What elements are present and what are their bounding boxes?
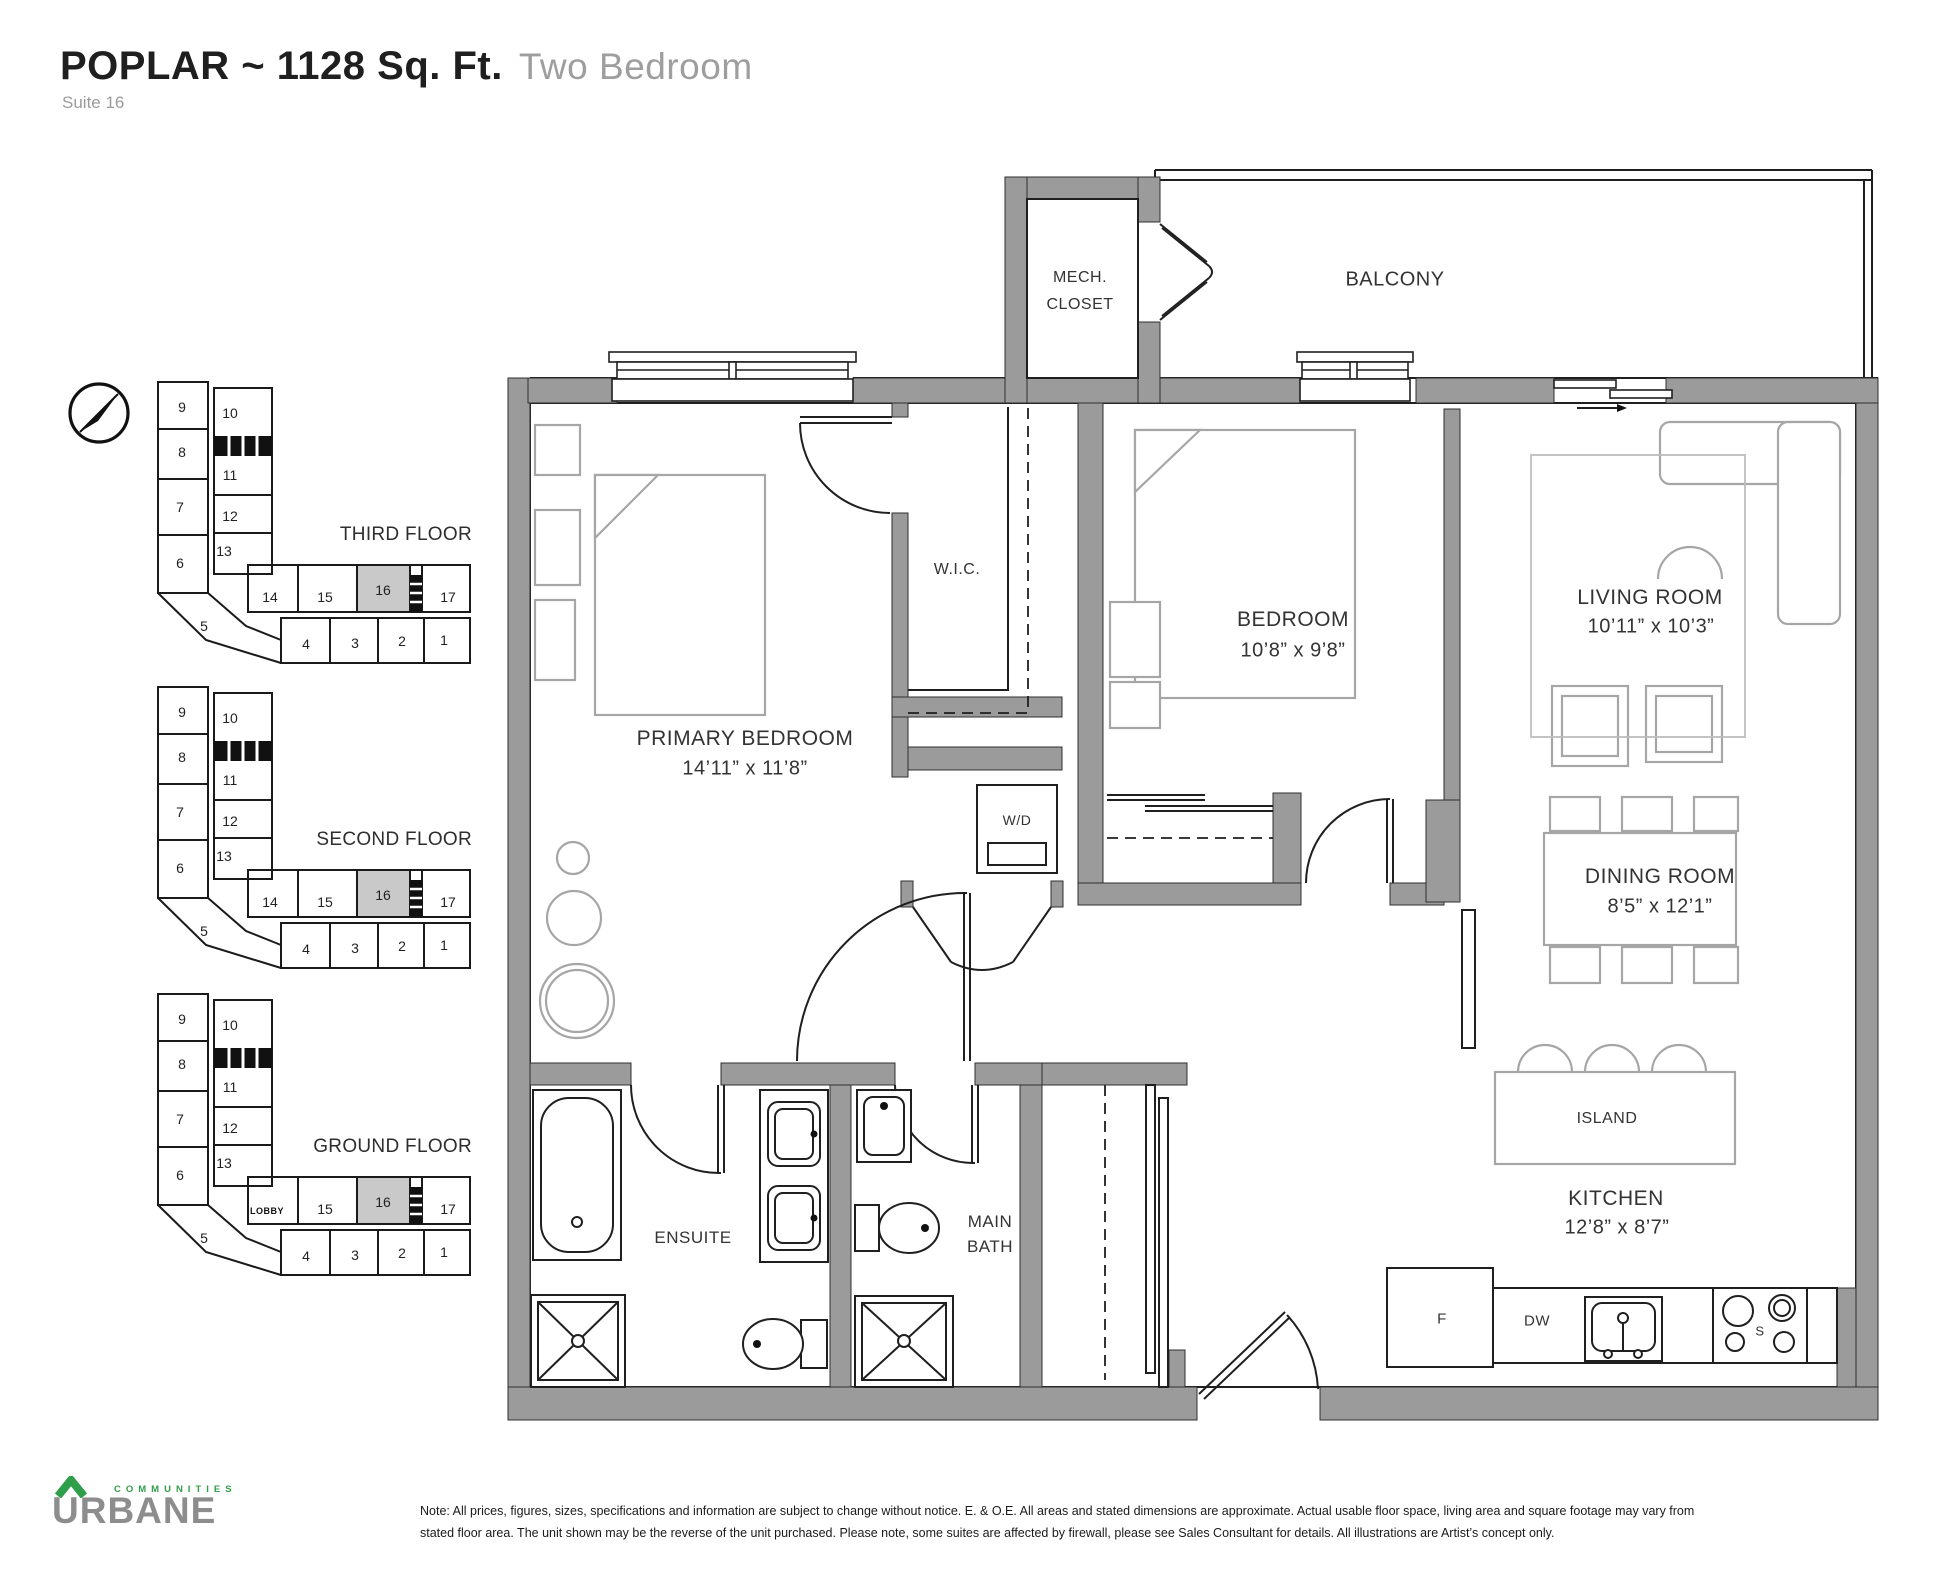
label-living-room-dims: 10’11” x 10’3” <box>1588 616 1715 639</box>
balcony-slider <box>1554 380 1672 398</box>
keyplan-unit-4: 4 <box>302 941 310 957</box>
keyplan-unit-13: 13 <box>216 848 232 864</box>
label-balcony: BALCONY <box>1345 269 1444 292</box>
floor-label: THIRD FLOOR <box>306 524 472 546</box>
label-island: ISLAND <box>1577 1110 1638 1128</box>
label-main-bath-line1: MAIN <box>968 1212 1013 1232</box>
keyplan-unit-17: 17 <box>440 894 456 910</box>
label-bedroom: BEDROOM <box>1237 608 1349 632</box>
keyplan-unit-9: 9 <box>178 399 186 415</box>
label-dining-room-dims: 8’5” x 12’1” <box>1608 896 1713 919</box>
keyplan-third-floor: 9108117126135141516174321 THIRD FLOOR <box>148 378 478 670</box>
keyplan-unit-6: 6 <box>176 1167 184 1183</box>
label-mech-closet-line1: MECH. <box>1053 269 1107 287</box>
keyplan-unit-16: 16 <box>375 887 391 903</box>
label-mech-closet-line2: CLOSET <box>1046 296 1113 314</box>
label-bedroom-dims: 10’8” x 9’8” <box>1241 640 1346 663</box>
label-kitchen: KITCHEN <box>1568 1187 1664 1211</box>
disclaimer-line2: stated floor area. The unit shown may be… <box>420 1522 1880 1544</box>
label-dishwasher: DW <box>1524 1313 1550 1330</box>
keyplan-unit-12: 12 <box>222 813 238 829</box>
urbane-logo: COMMUNITIES URBANE <box>52 1476 292 1548</box>
keyplan-unit-17: 17 <box>440 589 456 605</box>
keyplan-unit-12: 12 <box>222 1120 238 1136</box>
floorplan-page: POPLAR ~ 1128 Sq. Ft. Two Bedroom Suite … <box>0 0 1950 1575</box>
keyplan-unit-16: 16 <box>375 1194 391 1210</box>
keyplan-lobby-label: LOBBY <box>250 1206 284 1216</box>
keyplan-unit-5: 5 <box>200 923 208 939</box>
logo-word: URBANE <box>52 1490 216 1532</box>
compass-icon <box>66 380 134 448</box>
keyplan-unit-3: 3 <box>351 635 359 651</box>
label-living-room: LIVING ROOM <box>1577 586 1723 610</box>
keyplan-unit-6: 6 <box>176 555 184 571</box>
keyplan-unit-15: 15 <box>317 1201 333 1217</box>
keyplan-unit-5: 5 <box>200 618 208 634</box>
floor-label: SECOND FLOOR <box>306 829 472 851</box>
label-primary-bedroom-dims: 14’11” x 11’8” <box>682 758 807 781</box>
keyplan-unit-17: 17 <box>440 1201 456 1217</box>
label-stove: S <box>1755 1324 1764 1339</box>
keyplan-unit-6: 6 <box>176 860 184 876</box>
page-title: POPLAR ~ 1128 Sq. Ft. Two Bedroom <box>60 44 753 89</box>
keyplan-unit-9: 9 <box>178 704 186 720</box>
label-wic: W.I.C. <box>934 561 981 579</box>
keyplan-unit-10: 10 <box>222 1017 238 1033</box>
keyplan-unit-3: 3 <box>351 1247 359 1263</box>
keyplan-unit-11: 11 <box>223 772 238 788</box>
floor-label: GROUND FLOOR <box>306 1136 472 1158</box>
balcony-railing <box>530 170 1878 378</box>
label-fridge: F <box>1437 1311 1447 1328</box>
label-kitchen-dims: 12’8” x 8’7” <box>1565 1217 1670 1240</box>
keyplan-unit-15: 15 <box>317 894 333 910</box>
keyplan-unit-11: 11 <box>223 467 238 483</box>
keyplan-unit-2: 2 <box>398 1245 406 1261</box>
label-primary-bedroom: PRIMARY BEDROOM <box>637 727 854 751</box>
keyplan-unit-7: 7 <box>176 804 184 820</box>
label-ensuite: ENSUITE <box>654 1228 731 1248</box>
keyplan-unit-1: 1 <box>440 937 448 953</box>
keyplan-unit-13: 13 <box>216 543 232 559</box>
disclaimer: Note: All prices, figures, sizes, specif… <box>420 1500 1880 1544</box>
keyplan-unit-13: 13 <box>216 1155 232 1171</box>
keyplan-unit-14: 14 <box>262 589 278 605</box>
keyplan-unit-8: 8 <box>178 1056 186 1072</box>
bedroom-window <box>1297 352 1413 401</box>
keyplan-unit-4: 4 <box>302 636 310 652</box>
keyplan-ground-floor: 91081171261351516174321LOBBY GROUND FLOO… <box>148 990 478 1282</box>
primary-bedroom-window <box>609 352 856 401</box>
keyplan-unit-12: 12 <box>222 508 238 524</box>
keyplan-unit-5: 5 <box>200 1230 208 1246</box>
plan-type: Two Bedroom <box>519 46 753 88</box>
keyplan-unit-9: 9 <box>178 1011 186 1027</box>
keyplan-unit-16: 16 <box>375 582 391 598</box>
keyplan-second-floor: 9108117126135141516174321 SECOND FLOOR <box>148 683 478 975</box>
label-washer-dryer: W/D <box>1003 812 1032 828</box>
keyplan-unit-8: 8 <box>178 749 186 765</box>
keyplan-unit-2: 2 <box>398 938 406 954</box>
suite-number: Suite 16 <box>62 93 124 113</box>
main-floorplan: MECH. CLOSET BALCONY W.I.C. PRIMARY BEDR… <box>505 140 1880 1425</box>
keyplan-unit-8: 8 <box>178 444 186 460</box>
keyplan-unit-3: 3 <box>351 940 359 956</box>
keyplan-unit-1: 1 <box>440 632 448 648</box>
label-dining-room: DINING ROOM <box>1585 865 1735 889</box>
keyplan-unit-7: 7 <box>176 1111 184 1127</box>
keyplan-unit-1: 1 <box>440 1244 448 1260</box>
plan-name: POPLAR ~ 1128 Sq. Ft. <box>60 44 503 89</box>
label-main-bath-line2: BATH <box>967 1237 1013 1257</box>
keyplan-unit-7: 7 <box>176 499 184 515</box>
keyplan-unit-14: 14 <box>262 894 278 910</box>
keyplan-unit-10: 10 <box>222 405 238 421</box>
keyplan-unit-15: 15 <box>317 589 333 605</box>
disclaimer-line1: Note: All prices, figures, sizes, specif… <box>420 1500 1880 1522</box>
keyplan-unit-10: 10 <box>222 710 238 726</box>
keyplan-unit-11: 11 <box>223 1079 238 1095</box>
keyplan-unit-4: 4 <box>302 1248 310 1264</box>
keyplan-unit-2: 2 <box>398 633 406 649</box>
